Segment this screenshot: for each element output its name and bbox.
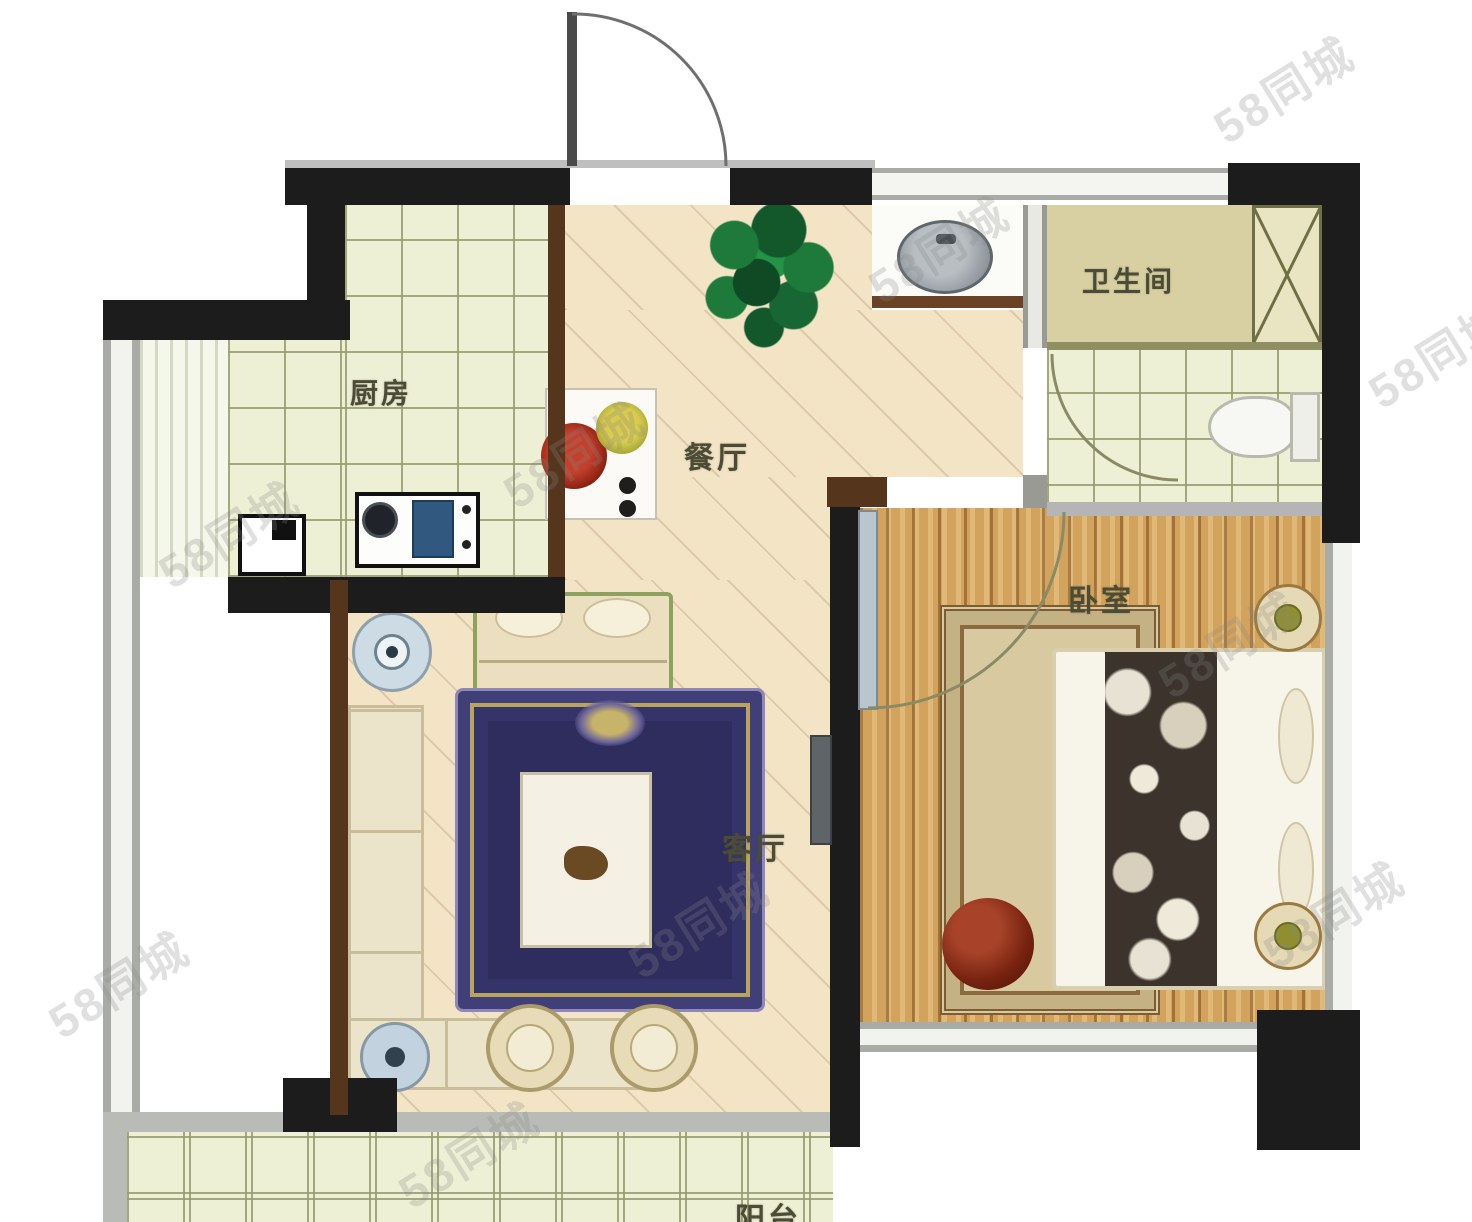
bathroom-label: 卫生间 <box>1082 260 1175 300</box>
floor-plan: 厨房 餐厅 卫生间 卧室 客厅 阳台 58同城 58同城 58同城 58同城 5… <box>0 0 1472 1222</box>
dining-label: 餐厅 <box>684 433 750 477</box>
door-swing-overlay <box>0 0 1472 1222</box>
bedroom-label: 卧室 <box>1068 576 1134 620</box>
balcony-label: 阳台 <box>735 1194 801 1222</box>
bedroom-door-arc <box>868 512 1064 708</box>
living-label: 客厅 <box>722 824 788 868</box>
kitchen-label: 厨房 <box>350 372 412 412</box>
entry-door-arc <box>572 14 726 166</box>
bathroom-door-arc <box>1052 354 1178 480</box>
